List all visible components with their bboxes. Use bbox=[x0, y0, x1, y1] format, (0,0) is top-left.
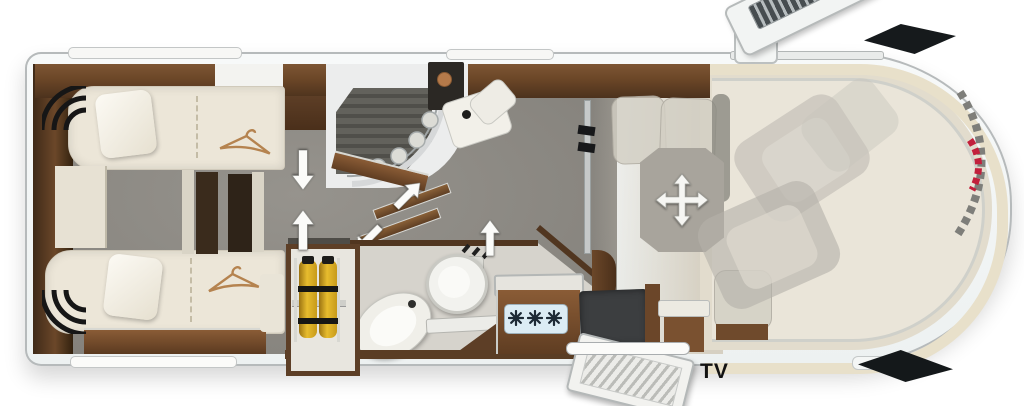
faucet-dot bbox=[462, 110, 471, 119]
bed-side-panel bbox=[260, 274, 284, 332]
gas-locker-rail bbox=[337, 258, 340, 342]
direction-arrow-icon bbox=[292, 210, 314, 250]
bed-top-pillow bbox=[94, 89, 157, 159]
washroom-wall-top bbox=[348, 240, 538, 246]
side-mirror-top-icon bbox=[864, 24, 956, 54]
floorplan-image: TV bbox=[0, 0, 1024, 406]
bed-top-seam bbox=[196, 96, 198, 158]
bed-bottom-seam bbox=[190, 258, 192, 322]
gas-bottle-cap bbox=[302, 256, 314, 264]
gas-burner-icon bbox=[527, 310, 543, 326]
front-grille-logo bbox=[938, 88, 1008, 238]
entry-step-bar bbox=[566, 342, 690, 355]
basin-faucet-dot bbox=[408, 300, 416, 308]
hanger-icon bbox=[217, 123, 276, 159]
gas-burner-icon bbox=[546, 310, 562, 326]
bed-step bbox=[228, 174, 252, 252]
bed-corner-trim bbox=[42, 86, 92, 134]
hanger-icon bbox=[204, 262, 262, 297]
gas-bottle bbox=[299, 260, 317, 338]
gas-bottle-cap bbox=[322, 256, 334, 264]
move-arrows-icon bbox=[654, 172, 710, 228]
bed-step bbox=[196, 172, 218, 254]
toilet-seat bbox=[438, 266, 470, 298]
tv-label: TV bbox=[700, 360, 729, 384]
rear-window-bar bbox=[70, 356, 237, 368]
bed-corner-trim bbox=[42, 286, 92, 334]
wardrobe-block bbox=[283, 96, 329, 130]
gas-bottle-strap bbox=[298, 286, 338, 292]
window-rail-mid bbox=[446, 49, 554, 60]
bed-step-edge bbox=[182, 170, 194, 254]
gas-burner-icon bbox=[508, 310, 524, 326]
window-rail-left bbox=[68, 47, 242, 59]
dinette-bench-wood bbox=[716, 324, 768, 340]
gas-bottle bbox=[319, 260, 337, 338]
direction-arrow-icon bbox=[480, 220, 500, 256]
bed-center-platform bbox=[55, 166, 107, 248]
bed-bench-wood bbox=[84, 328, 266, 354]
direction-arrow-icon bbox=[292, 150, 314, 190]
tv-sideboard-top bbox=[658, 300, 710, 317]
partition-wall bbox=[584, 100, 591, 254]
gas-locker-rail bbox=[294, 258, 297, 342]
bed-bottom-pillow bbox=[102, 253, 163, 321]
copper-basin-knob bbox=[437, 72, 452, 87]
bed-step-edge bbox=[252, 172, 264, 252]
gas-bottle-strap bbox=[298, 318, 338, 324]
